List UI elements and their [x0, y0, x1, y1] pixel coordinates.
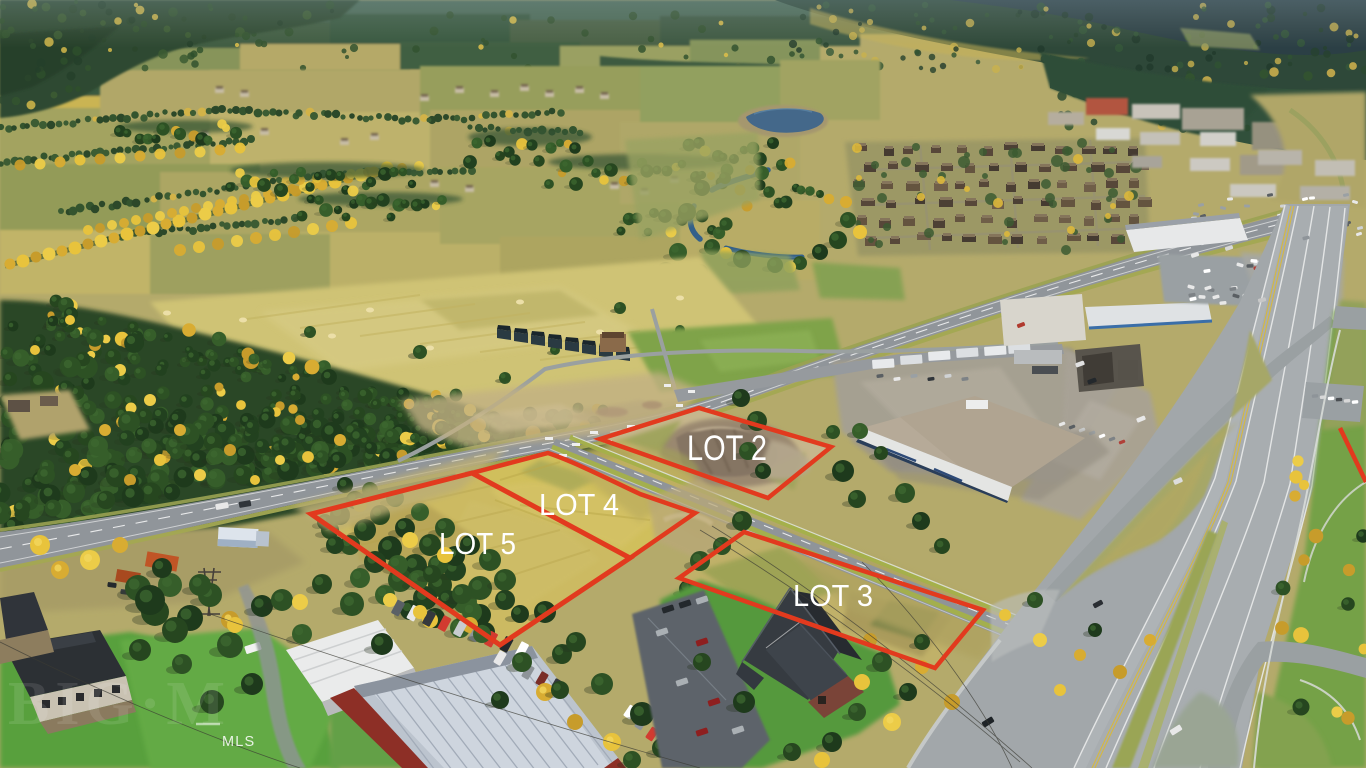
- svg-text:BIG·M: BIG·M: [8, 670, 231, 738]
- svg-text:MLS: MLS: [222, 734, 255, 750]
- svg-text:LOT 3: LOT 3: [793, 578, 873, 613]
- svg-text:LOT 2: LOT 2: [687, 429, 767, 468]
- svg-text:LOT 5: LOT 5: [439, 526, 516, 561]
- svg-text:LOT 4: LOT 4: [539, 487, 619, 522]
